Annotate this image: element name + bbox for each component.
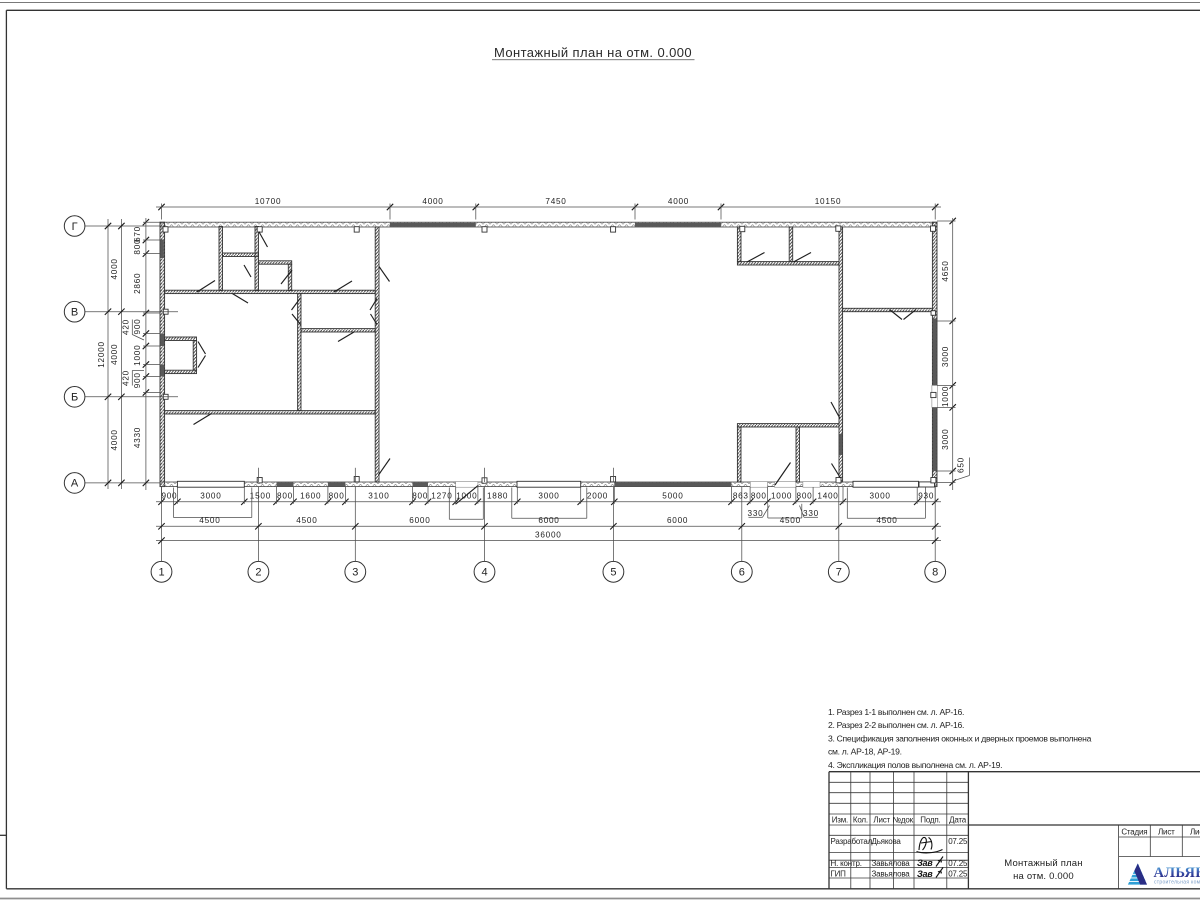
svg-text:В: В <box>71 307 78 319</box>
svg-text:4500: 4500 <box>780 516 801 525</box>
svg-text:1880: 1880 <box>487 492 508 501</box>
svg-text:Г: Г <box>72 221 78 233</box>
svg-text:Завьялова: Завьялова <box>872 859 911 868</box>
svg-text:1: 1 <box>158 567 164 579</box>
svg-text:36000: 36000 <box>535 530 562 539</box>
svg-text:1000: 1000 <box>456 492 477 501</box>
svg-text:4000: 4000 <box>110 258 119 279</box>
svg-text:Лист: Лист <box>1190 828 1200 837</box>
svg-text:строительная компания: строительная компания <box>1154 879 1200 885</box>
svg-text:А: А <box>71 478 79 490</box>
svg-text:1400: 1400 <box>817 492 838 501</box>
svg-text:6000: 6000 <box>538 516 559 525</box>
svg-text:800: 800 <box>133 239 142 255</box>
svg-text:930: 930 <box>918 492 934 501</box>
svg-text:6: 6 <box>739 567 745 579</box>
svg-text:Монтажный план: Монтажный план <box>1004 858 1082 869</box>
svg-text:АЛЬЯНС: АЛЬЯНС <box>1154 865 1200 881</box>
svg-text:6000: 6000 <box>667 516 688 525</box>
svg-text:650: 650 <box>956 457 965 473</box>
svg-text:4000: 4000 <box>110 344 119 365</box>
svg-text:4500: 4500 <box>876 516 897 525</box>
svg-text:Дьякова: Дьякова <box>872 837 902 846</box>
svg-text:12000: 12000 <box>97 341 106 368</box>
svg-text:4500: 4500 <box>199 516 220 525</box>
svg-text:863: 863 <box>733 492 749 501</box>
svg-text:800: 800 <box>797 492 813 501</box>
svg-text:Б: Б <box>71 392 78 404</box>
svg-text:4. Экспликация полов выполнена: 4. Экспликация полов выполнена см. л. АР… <box>828 760 1002 770</box>
svg-text:800: 800 <box>277 492 293 501</box>
svg-text:5: 5 <box>610 567 616 579</box>
svg-text:1000: 1000 <box>771 492 792 501</box>
svg-text:2860: 2860 <box>133 273 142 294</box>
svg-text:2000: 2000 <box>587 492 608 501</box>
svg-text:330: 330 <box>748 509 764 518</box>
svg-text:8: 8 <box>932 567 938 579</box>
svg-text:3: 3 <box>352 567 358 579</box>
svg-text:420: 420 <box>121 319 130 335</box>
svg-text:2. Разрез 2-2 выполнен см. л.: 2. Разрез 2-2 выполнен см. л. АР-16. <box>828 720 964 730</box>
svg-text:4000: 4000 <box>668 197 689 206</box>
svg-text:2: 2 <box>255 567 261 579</box>
svg-text:4500: 4500 <box>296 516 317 525</box>
svg-text:Разработал: Разработал <box>831 837 873 846</box>
svg-text:№док.: №док. <box>892 816 914 825</box>
svg-text:3100: 3100 <box>368 492 389 501</box>
svg-text:Лист: Лист <box>873 816 890 825</box>
svg-text:4000: 4000 <box>422 197 443 206</box>
svg-text:Н. контр.: Н. контр. <box>831 859 862 868</box>
svg-text:1000: 1000 <box>133 345 142 366</box>
svg-text:1600: 1600 <box>300 492 321 501</box>
svg-text:3000: 3000 <box>941 346 950 367</box>
svg-text:4000: 4000 <box>110 429 119 450</box>
svg-text:4650: 4650 <box>941 260 950 281</box>
svg-text:4330: 4330 <box>133 427 142 448</box>
svg-text:10150: 10150 <box>815 197 842 206</box>
svg-text:1000: 1000 <box>941 386 950 407</box>
svg-text:800: 800 <box>412 492 428 501</box>
svg-text:1500: 1500 <box>250 492 271 501</box>
svg-text:800: 800 <box>751 492 767 501</box>
svg-text:Зав: Зав <box>917 869 933 879</box>
svg-text:900: 900 <box>133 372 142 388</box>
svg-text:5000: 5000 <box>662 492 683 501</box>
svg-text:Лист: Лист <box>1158 828 1175 837</box>
svg-text:см. л. АР-18, АР-19.: см. л. АР-18, АР-19. <box>828 747 902 757</box>
svg-text:Стадия: Стадия <box>1121 828 1147 837</box>
svg-text:Подп.: Подп. <box>920 816 940 825</box>
svg-text:на отм. 0.000: на отм. 0.000 <box>1013 871 1074 882</box>
svg-text:ГИП: ГИП <box>831 870 847 879</box>
svg-text:10700: 10700 <box>255 197 282 206</box>
svg-text:Завьялова: Завьялова <box>872 870 911 879</box>
svg-text:07.25: 07.25 <box>948 870 968 879</box>
svg-text:3. Спецификация заполнения око: 3. Спецификация заполнения оконных и две… <box>828 733 1092 743</box>
svg-text:800: 800 <box>329 492 345 501</box>
svg-text:Кол.: Кол. <box>853 816 868 825</box>
svg-text:3000: 3000 <box>200 492 221 501</box>
svg-text:07.25: 07.25 <box>948 859 968 868</box>
svg-text:07.25: 07.25 <box>948 837 968 846</box>
svg-text:4: 4 <box>481 567 487 579</box>
svg-text:3000: 3000 <box>538 492 559 501</box>
svg-text:330: 330 <box>803 509 819 518</box>
svg-text:Монтажный план на отм. 0.000: Монтажный план на отм. 0.000 <box>494 45 692 60</box>
svg-text:7: 7 <box>836 567 842 579</box>
svg-text:3000: 3000 <box>941 429 950 450</box>
svg-text:420: 420 <box>121 370 130 386</box>
svg-text:1. Разрез 1-1 выполнен см. л.: 1. Разрез 1-1 выполнен см. л. АР-16. <box>828 707 964 717</box>
svg-text:Зав: Зав <box>917 858 933 868</box>
svg-text:900: 900 <box>133 319 142 335</box>
svg-text:Дата: Дата <box>949 816 967 825</box>
svg-text:6000: 6000 <box>409 516 430 525</box>
svg-text:7450: 7450 <box>545 197 566 206</box>
svg-text:900: 900 <box>161 492 177 501</box>
svg-text:3000: 3000 <box>869 492 890 501</box>
svg-text:Изм.: Изм. <box>832 816 848 825</box>
